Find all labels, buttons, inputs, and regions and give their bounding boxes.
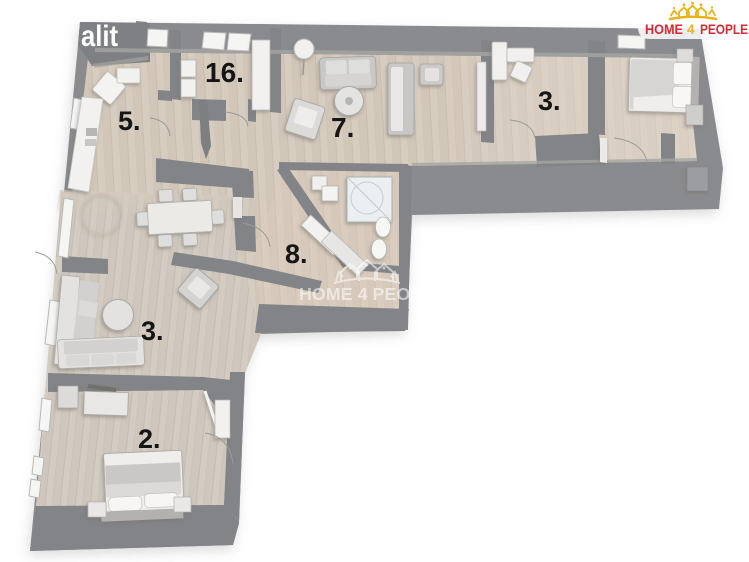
svg-text:3.: 3.	[141, 316, 164, 346]
svg-text:16.: 16.	[205, 57, 244, 88]
svg-text:5.: 5.	[118, 106, 141, 136]
svg-text:3.: 3.	[538, 86, 561, 116]
svg-text:2.: 2.	[138, 424, 161, 454]
svg-text:HOME: HOME	[645, 22, 683, 37]
svg-text:PEOPLE: PEOPLE	[700, 22, 748, 37]
svg-text:7.: 7.	[331, 112, 354, 143]
svg-text:alit: alit	[81, 20, 118, 53]
svg-text:8.: 8.	[285, 239, 308, 269]
svg-text:HOME 4 PEOPLE: HOME 4 PEOPLE	[299, 284, 445, 304]
svg-text:4: 4	[687, 22, 695, 37]
